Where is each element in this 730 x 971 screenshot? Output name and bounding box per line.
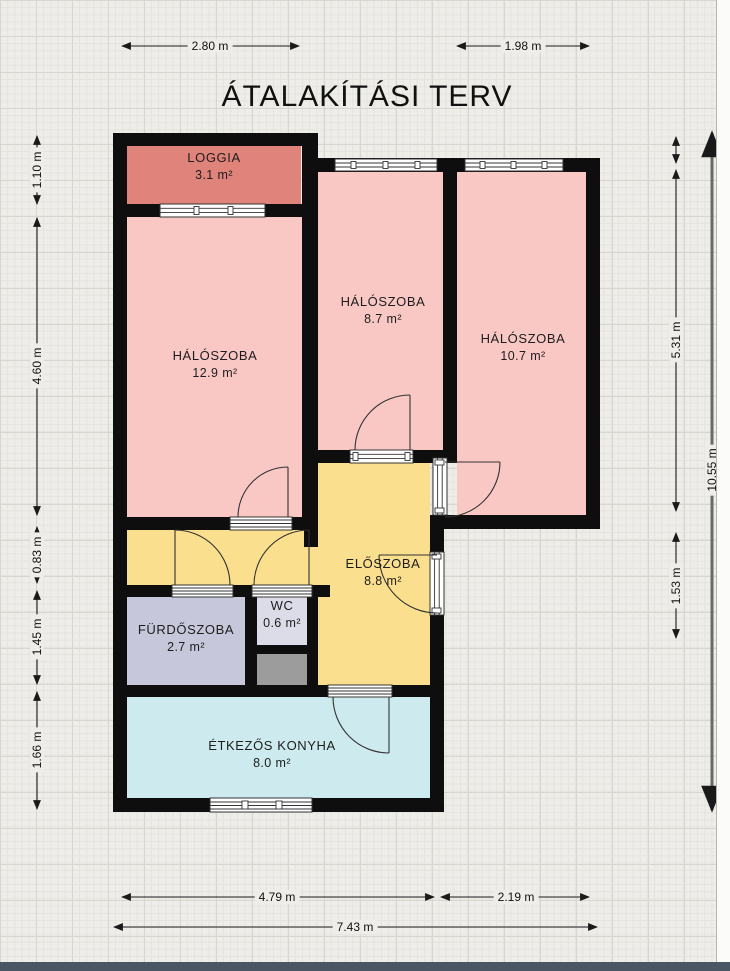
dim-bottom-2: 2.19 m bbox=[494, 890, 539, 904]
bedroom-mid-door-sill bbox=[350, 450, 413, 463]
bedroom-mid-window bbox=[335, 159, 437, 171]
room-name: HÁLÓSZOBA bbox=[481, 331, 566, 348]
floor-plan-page: ÁTALAKÍTÁSI TERV LOGGIA 3.1 m² HÁLÓSZOBA… bbox=[0, 0, 730, 971]
room-name: HÁLÓSZOBA bbox=[173, 348, 258, 365]
dim-top-2: 1.98 m bbox=[501, 39, 546, 53]
room-name: LOGGIA bbox=[187, 150, 240, 167]
dim-top-1: 2.80 m bbox=[188, 39, 233, 53]
duct-shaft-fill bbox=[257, 654, 307, 685]
room-label-wc: WC 0.6 m² bbox=[263, 598, 301, 631]
room-label-bedroom-right: HÁLÓSZOBA 10.7 m² bbox=[481, 331, 566, 364]
room-area: 0.6 m² bbox=[263, 615, 301, 631]
room-fills bbox=[127, 146, 586, 798]
window-bottom-edge bbox=[0, 962, 730, 971]
room-name: HÁLÓSZOBA bbox=[341, 294, 426, 311]
bedroom-left-door-sill bbox=[230, 517, 292, 530]
room-label-bedroom-mid: HÁLÓSZOBA 8.7 m² bbox=[341, 294, 426, 327]
page-right-margin bbox=[716, 0, 730, 971]
dim-left-2: 4.60 m bbox=[30, 344, 44, 389]
dim-left-4: 1.45 m bbox=[30, 615, 44, 660]
room-area: 8.0 m² bbox=[208, 755, 336, 771]
room-name: ÉTKEZŐS KONYHA bbox=[208, 738, 336, 755]
room-area: 3.1 m² bbox=[187, 167, 240, 183]
room-area: 10.7 m² bbox=[481, 348, 566, 364]
plan-title: ÁTALAKÍTÁSI TERV bbox=[221, 80, 512, 114]
dim-right-1: 5.31 m bbox=[669, 318, 683, 363]
room-label-kitchen: ÉTKEZŐS KONYHA 8.0 m² bbox=[208, 738, 336, 771]
room-name: ELŐSZOBA bbox=[346, 556, 421, 573]
dim-bottom-1: 4.79 m bbox=[255, 890, 300, 904]
room-label-hall: ELŐSZOBA 8.8 m² bbox=[346, 556, 421, 589]
dim-bottom-3: 7.43 m bbox=[333, 920, 378, 934]
wc-door-sill bbox=[252, 585, 312, 597]
dim-left-3: 0.83 m bbox=[30, 533, 44, 578]
dim-left-5: 1.66 m bbox=[30, 728, 44, 773]
bedroom-right-door-frame bbox=[433, 458, 447, 515]
room-label-loggia: LOGGIA 3.1 m² bbox=[187, 150, 240, 183]
room-name: FÜRDŐSZOBA bbox=[138, 622, 234, 639]
bedroom-right-window bbox=[465, 159, 563, 171]
floor-plan-drawing bbox=[0, 0, 730, 971]
room-area: 8.8 m² bbox=[346, 573, 421, 589]
kitchen-window bbox=[210, 798, 312, 812]
room-label-bathroom: FÜRDŐSZOBA 2.7 m² bbox=[138, 622, 234, 655]
room-label-bedroom-left: HÁLÓSZOBA 12.9 m² bbox=[173, 348, 258, 381]
room-area: 12.9 m² bbox=[173, 365, 258, 381]
entrance-door-frame bbox=[430, 552, 444, 615]
room-area: 2.7 m² bbox=[138, 639, 234, 655]
loggia-window bbox=[160, 204, 265, 217]
bathroom-door-sill bbox=[172, 585, 233, 597]
dim-right-2: 1.53 m bbox=[669, 564, 683, 609]
room-name: WC bbox=[263, 598, 301, 615]
dim-left-1: 1.10 m bbox=[30, 148, 44, 193]
kitchen-door-sill bbox=[328, 685, 392, 697]
room-area: 8.7 m² bbox=[341, 311, 426, 327]
